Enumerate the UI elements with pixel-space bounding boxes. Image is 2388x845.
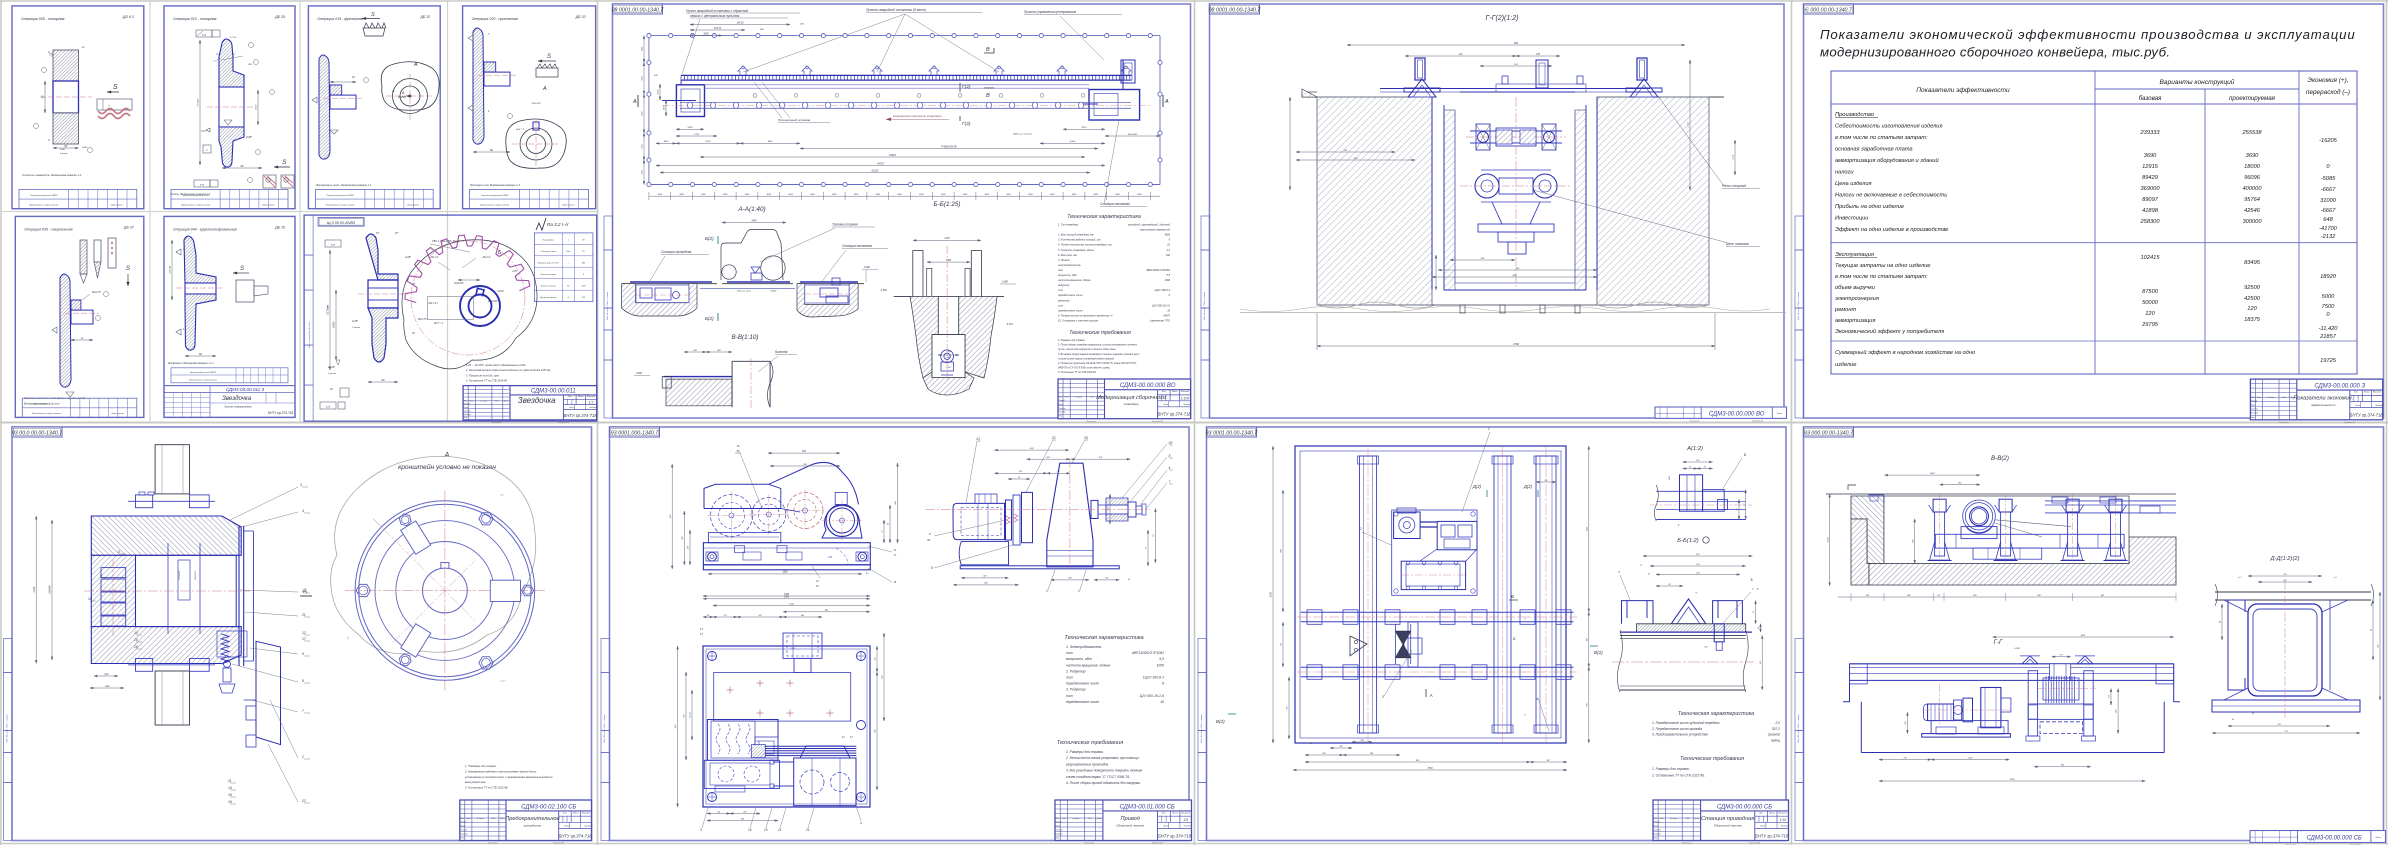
svg-text:Листов 1: Листов 1 (1780, 826, 1789, 828)
svg-text:Лист: Лист (1162, 404, 1168, 406)
svg-text:конвейера: конвейера (1124, 402, 1139, 406)
svg-text:Станция натяжная: Станция натяжная (842, 244, 872, 248)
svg-text:d₀: d₀ (567, 297, 569, 299)
svg-text:Б-Б(1:25): Б-Б(1:25) (933, 201, 960, 208)
svg-text:+: + (108, 103, 110, 107)
svg-text:Лит.: Лит. (1161, 812, 1167, 814)
svg-text:1550: 1550 (946, 260, 952, 262)
svg-text:Масса: Масса (578, 396, 583, 398)
svg-text:Утв.: Утв. (460, 838, 465, 840)
svg-text:-41700: -41700 (2319, 226, 2338, 232)
svg-text:СДМ3-00.00.000 СБ: СДМ3-00.00.000 СБ (2307, 836, 2362, 842)
svg-text:3: 3 (300, 483, 302, 487)
svg-text:Цепь тяговая: Цепь тяговая (1726, 242, 1749, 246)
svg-text:3. Редуктор: 3. Редуктор (1066, 688, 1086, 692)
svg-text:В(2): В(2) (1216, 719, 1225, 724)
svg-text:Т.контр.: Т.контр. (2251, 409, 2259, 411)
svg-text:В: В (986, 47, 990, 53)
svg-text:Разраб.: Разраб. (1056, 821, 1063, 823)
svg-text:частота вращения, об/мин: частота вращения, об/мин (1066, 663, 1110, 667)
svg-text:1000: 1000 (1156, 663, 1164, 667)
svg-text:СДМ3-00.00.000 СБ: СДМ3-00.00.000 СБ (1717, 804, 1772, 810)
svg-text:800: 800 (1514, 42, 1519, 45)
svg-text:Лист: Лист (1162, 826, 1168, 828)
svg-text:1. Размеры для справок.: 1. Размеры для справок. (1066, 750, 1104, 754)
svg-text:1530: 1530 (1930, 473, 1936, 475)
svg-text:703: 703 (2109, 695, 2111, 698)
svg-text:4700: 4700 (706, 140, 712, 143)
svg-text:Дата: Дата (2290, 397, 2296, 399)
svg-text:10: 10 (764, 828, 768, 832)
svg-text:по всем длине трассы конвейера: по всем длине трассы конвейера жидкой см… (1058, 357, 1115, 360)
svg-text:Г-Г: Г-Г (1994, 639, 2003, 646)
svg-text:Изм.: Изм. (2251, 397, 2255, 399)
svg-text:Подп.: Подп. (1090, 396, 1095, 399)
svg-text:1:10: 1:10 (1779, 818, 1786, 822)
svg-text:75: 75 (1146, 547, 1148, 549)
svg-text:12: 12 (302, 631, 306, 635)
svg-text:Дата: Дата (1096, 818, 1102, 820)
svg-text:Н.контр.: Н.контр. (2251, 413, 2259, 415)
svg-text:95764: 95764 (2244, 197, 2260, 203)
svg-text:Масса: Масса (1173, 812, 1178, 814)
svg-text:№ докум.: № докум. (1072, 817, 1080, 820)
svg-text:Лит.: Лит. (567, 396, 573, 398)
svg-text:Формат А1: Формат А1 (553, 842, 564, 845)
svg-text:Дата: Дата (1098, 397, 1104, 399)
svg-text:Д(2): Д(2) (1523, 484, 1533, 489)
svg-text:объем выручки: объем выручки (1835, 285, 1876, 291)
svg-text:Эффект на одно изделие в произ: Эффект на одно изделие в производстве (1835, 227, 1948, 233)
svg-text:15°: 15° (232, 54, 235, 56)
svg-text:Себестоимость изготовления изд: Себестоимость изготовления изделия (1835, 124, 1943, 130)
svg-text:тип: тип (1066, 676, 1073, 680)
svg-text:22: 22 (1166, 244, 1170, 247)
svg-text:1:2: 1:2 (589, 400, 594, 404)
svg-text:400000: 400000 (2243, 186, 2263, 192)
svg-text:5,5: 5,5 (1167, 274, 1171, 277)
svg-text:∅130: ∅130 (33, 586, 36, 593)
svg-text:1,115: 1,115 (1688, 122, 1690, 128)
svg-text:В-В(2): В-В(2) (1991, 455, 2009, 462)
svg-text:2х45°: 2х45° (351, 320, 358, 323)
svg-text:1. Электродвигатель: 1. Электродвигатель (1066, 645, 1102, 649)
svg-text:1. Размеры для справок.: 1. Размеры для справок. (1058, 339, 1086, 342)
svg-text:Формат А1: Формат А1 (2344, 421, 2355, 424)
svg-text:34073: 34073 (1163, 314, 1171, 317)
svg-text:-0,630: -0,630 (770, 291, 777, 293)
svg-text:93 000.00.00-1340.7: 93 000.00.00-1340.7 (1804, 431, 1854, 437)
svg-text:БНТУ гр.374-718: БНТУ гр.374-718 (564, 413, 598, 418)
svg-text:18000: 18000 (2244, 164, 2261, 170)
svg-text:Лист: Лист (469, 401, 475, 403)
svg-text:Наименование и марка станка: Наименование и марка станка (189, 380, 217, 382)
svg-text:2035: 2035 (1586, 526, 1588, 532)
svg-text:42546: 42546 (2244, 208, 2261, 214)
svg-text:3800: 3800 (768, 141, 774, 143)
svg-text:Протянуть паз, Выдерживая разм: Протянуть паз, Выдерживая размеры 1-3 (470, 184, 520, 187)
svg-text:160: 160 (1166, 254, 1171, 257)
svg-text:Н.контр.: Н.контр. (1059, 412, 1067, 414)
svg-text:16: 16 (1160, 700, 1164, 704)
svg-text:Формат А1: Формат А1 (1152, 420, 1163, 423)
svg-text:А: А (1164, 99, 1169, 105)
svg-text:22: 22 (301, 799, 306, 803)
svg-text:2475: 2475 (1081, 126, 1088, 129)
svg-text:редуктор: редуктор (1057, 284, 1070, 287)
svg-text:∅176вн: ∅176вн (197, 98, 200, 107)
svg-text:электродвигатель: электродвигатель (1058, 264, 1081, 267)
svg-text:45: 45 (1018, 476, 1020, 479)
svg-text:∅176мм: ∅176мм (326, 305, 330, 315)
svg-text:Пульты аварийной остановки (6: Пульты аварийной остановки (6 мест) (866, 8, 926, 12)
svg-text:Пров.: Пров. (1059, 404, 1064, 406)
svg-text:648: 648 (2323, 217, 2333, 223)
svg-text:регулировочных прокладок.: регулировочных прокладок. (1065, 762, 1109, 766)
svg-text:300000: 300000 (2243, 219, 2263, 225)
svg-text:84: 84 (2219, 621, 2222, 623)
svg-text:Дата: Дата (499, 818, 505, 820)
svg-text:15°: 15° (216, 54, 219, 56)
svg-text:Масса: Масса (573, 812, 578, 814)
svg-text:Г(2): Г(2) (962, 84, 971, 90)
svg-text:20: 20 (1168, 441, 1173, 445)
svg-text:Суммарный эффект в народном хо: Суммарный эффект в народном хозяйстве на… (1835, 349, 1975, 356)
svg-text:А: А (542, 86, 547, 92)
svg-text:Лист: Лист (465, 818, 471, 820)
svg-text:5. Скорость конвейера, м/мин: 5. Скорость конвейера, м/мин (1058, 249, 1094, 252)
svg-text:20: 20 (1703, 466, 1706, 468)
svg-text:обмер переход: обмер переход (262, 204, 275, 207)
svg-text:Масштаб: Масштаб (1181, 812, 1190, 814)
svg-text:модернизированного сборочного: модернизированного сборочного конвейера,… (1820, 45, 2170, 60)
svg-text:18375: 18375 (2244, 317, 2261, 323)
svg-text:3690: 3690 (2144, 153, 2157, 159)
svg-text:120: 120 (1544, 480, 1547, 482)
svg-text:16х0,018: 16х0,018 (454, 283, 464, 285)
svg-text:9ж-0,018: 9ж-0,018 (488, 301, 498, 303)
svg-text:1 фаски: 1 фаски (352, 326, 361, 329)
svg-text:Тележка опорная: Тележка опорная (832, 223, 858, 227)
svg-text:ДБ 32: ДБ 32 (575, 15, 586, 19)
svg-text:БНТУ гр.374-718: БНТУ гр.374-718 (1158, 833, 1192, 838)
svg-text:∅120: ∅120 (1107, 507, 1110, 512)
svg-text:2. Шаг позиций конвейера, мм: 2. Шаг позиций конвейера, мм (1057, 234, 1094, 237)
svg-text:ДБ 16: ДБ 16 (274, 225, 285, 229)
svg-text:∅210: ∅210 (497, 289, 504, 293)
svg-text:Технические требования: Технические требования (1057, 740, 1123, 746)
svg-text:Листов 1: Листов 1 (583, 826, 592, 828)
svg-text:19725: 19725 (2320, 358, 2337, 364)
svg-text:Пров.: Пров. (1056, 825, 1061, 827)
svg-text:Пульт аварийной остановки с об: Пульт аварийной остановки с обратной (686, 9, 748, 13)
svg-text:19: 19 (228, 800, 232, 804)
svg-text:239333: 239333 (2140, 130, 2161, 136)
svg-text:1060: 1060 (782, 572, 788, 574)
svg-text:БНТУ гр.374-718: БНТУ гр.374-718 (2350, 413, 2384, 418)
svg-text:3755: 3755 (2010, 779, 2016, 781)
svg-text:Экономический эффект у потреби: Экономический эффект у потребителя (1835, 328, 1944, 335)
svg-text:Производство: Производство (1835, 112, 1874, 118)
svg-text:50000: 50000 (2142, 300, 2159, 306)
svg-text:Б-Б(1:2): Б-Б(1:2) (1677, 538, 1698, 544)
svg-text:мощность, кВт: мощность, кВт (1058, 274, 1077, 277)
svg-text:Копировал: Копировал (1690, 420, 1701, 422)
svg-text:Показатели эффективности: Показатели эффективности (1916, 87, 2010, 94)
svg-text:перерасход (–): перерасход (–) (2306, 88, 2350, 96)
svg-text:Показатели экономич.: Показатели экономич. (2293, 396, 2353, 402)
svg-text:связью с центральным пультом: связью с центральным пультом (690, 14, 740, 18)
svg-text:2. После сборки конвейер прокр: 2. После сборки конвейер прокрутить в хо… (1057, 344, 1138, 347)
svg-text:5300: 5300 (688, 127, 694, 129)
svg-text:9000: 9000 (703, 33, 709, 35)
svg-text:Текущие затраты на одно издели: Текущие затраты на одно изделие (1835, 263, 1930, 269)
svg-text:-6667: -6667 (2321, 208, 2336, 214)
svg-text:приводной, грузоведущий, обычн: приводной, грузоведущий, обычный (1128, 224, 1171, 227)
svg-text:А: А (1429, 693, 1433, 698)
svg-text:∅190/36*: ∅190/36* (178, 570, 181, 580)
svg-text:тип: тип (1058, 289, 1063, 292)
svg-text:Инв. № подл. Подп. и дата: Инв. № подл. Подп. и дата (1797, 291, 1800, 320)
svg-text:4ВР132S6УЗ IР1081: 4ВР132S6УЗ IР1081 (1146, 269, 1170, 272)
svg-text:9. Тяговое усилие на приводных: 9. Тяговое усилие на приводных звездочка… (1058, 314, 1113, 317)
svg-text:Лист: Лист (1061, 818, 1067, 820)
svg-text:Наименование и марка станка: Наименование и марка станка (480, 205, 510, 207)
svg-text:3. Предохранительное устройств: 3. Предохранительное устройство (1652, 733, 1708, 737)
svg-text:Т.контр.: Т.контр. (460, 829, 468, 831)
svg-text:258300: 258300 (2140, 219, 2161, 225)
svg-text:Г-Г(2)(1:2): Г-Г(2)(1:2) (1486, 15, 1519, 22)
svg-text:Б: Б (1511, 594, 1514, 599)
svg-text:Показатели экономической эффек: Показатели экономической эффективности п… (1820, 27, 2356, 42)
svg-text:2: 2 (1077, 589, 1080, 593)
svg-text:S: S (547, 54, 551, 60)
svg-text:15°: 15° (376, 233, 380, 235)
svg-text:15: 15 (1640, 565, 1642, 567)
svg-text:Цена изделия: Цена изделия (1835, 181, 1872, 187)
svg-text:Утв.: Утв. (1056, 838, 1061, 840)
svg-text:4. Полное количество постов ко: 4. Полное количество постов конвейера, ш… (1058, 244, 1112, 247)
svg-text:Н.контр.: Н.контр. (464, 414, 472, 416)
svg-text:передаточное число: передаточное число (1058, 309, 1083, 312)
svg-text:В-В(1:10): В-В(1:10) (732, 334, 759, 341)
svg-text:Инв. № подл. Подп. и дата: Инв. № подл. Подп. и дата (606, 291, 609, 320)
svg-text:вертикально-замкнутый: вертикально-замкнутый (1140, 229, 1170, 232)
svg-text:1: 1 (1046, 589, 1048, 593)
svg-text:Масса: Масса (1770, 812, 1775, 814)
svg-text:Пульты управления центральные: Пульты управления центральные (1024, 10, 1076, 14)
svg-text:-5085: -5085 (2321, 176, 2336, 182)
svg-text:340: 340 (801, 614, 804, 617)
svg-text:А: А (302, 589, 307, 595)
svg-text:А-А(1:40): А-А(1:40) (737, 206, 765, 213)
svg-text:Копировал: Копировал (1084, 843, 1095, 845)
svg-text:Лист: Лист (2374, 837, 2381, 839)
svg-text:z: z (567, 240, 569, 242)
svg-text:63225: 63225 (872, 169, 879, 172)
svg-text:√Rа 3,2: √Rа 3,2 (430, 256, 439, 259)
svg-text:7. Привод: 7. Привод (1058, 259, 1070, 262)
svg-text:134,20: 134,20 (736, 21, 744, 24)
svg-text:Операция 005 - токарная: Операция 005 - токарная (21, 17, 65, 21)
svg-text:кронштейн условно не показан: кронштейн условно не показан (398, 463, 496, 471)
svg-text:4: 4 (1169, 466, 1171, 470)
svg-text:аммортизация: аммортизация (1835, 318, 1875, 324)
svg-text:тип: тип (1058, 269, 1063, 272)
svg-text:Колонна: Колонна (775, 350, 788, 354)
svg-text:83495: 83495 (2244, 260, 2261, 266)
svg-text:Листов 1: Листов 1 (1182, 404, 1191, 406)
svg-text:5,5: 5,5 (1159, 657, 1164, 661)
svg-text:92500: 92500 (2244, 285, 2261, 291)
svg-text:А: А (632, 99, 637, 105)
svg-text:Масса: Масса (2364, 392, 2369, 394)
svg-text:Разраб.: Разраб. (460, 821, 467, 823)
svg-text:-16205: -16205 (2319, 138, 2338, 144)
svg-text:Щ.0 00.00-БЧВЗ: Щ.0 00.00-БЧВЗ (327, 221, 356, 225)
svg-text:11: 11 (228, 779, 232, 783)
svg-text:170: 170 (724, 615, 727, 617)
svg-text:∅140h8: ∅140h8 (49, 585, 52, 594)
svg-text:палец: палец (1771, 738, 1780, 742)
svg-text:3. Все резьбовые поверхности п: 3. Все резьбовые поверхности покрыть тон… (1066, 769, 1143, 773)
svg-text:№ докум.: № докум. (1670, 817, 1678, 820)
svg-text:3135: 3135 (1827, 537, 1829, 543)
svg-text:мощность, кВт: мощность, кВт (1066, 657, 1092, 661)
svg-text:Подп.: Подп. (1685, 817, 1690, 820)
svg-text:22: 22 (1051, 436, 1056, 440)
svg-text:40: 40 (1669, 583, 1671, 586)
svg-text:1 фаски: 1 фаски (328, 372, 337, 375)
svg-text:Инв. № подл. Подп. и дата: Инв. № подл. Подп. и дата (1797, 714, 1800, 743)
svg-text:Н.контр.: Н.контр. (1654, 833, 1662, 835)
svg-text:Звездочка: Звездочка (222, 395, 252, 402)
svg-text:Н.контр.: Н.контр. (460, 833, 468, 835)
svg-text:Экономия (+),: Экономия (+), (2308, 77, 2349, 84)
svg-text:1:100: 1:100 (1181, 397, 1190, 401)
svg-text:6465-76 №ТЗ VII.УЗ В-Вл сл: 6465-76 №ТЗ VII.УЗ В-Вл слоя обеспеч. ср… (1058, 367, 1111, 370)
svg-text:2. Направление рабочего хода: 2. Направление рабочего хода выключает д… (464, 769, 537, 773)
svg-text:1. Тип конвейера: 1. Тип конвейера (1058, 224, 1078, 227)
svg-text:-2132: -2132 (2321, 234, 2336, 240)
svg-text:961: 961 (1958, 482, 1961, 484)
svg-text:Варианты конструкций: Варианты конструкций (2160, 78, 2235, 86)
svg-text:5600: 5600 (1164, 234, 1170, 237)
svg-text:№ докум.: № докум. (1075, 396, 1083, 399)
svg-text:Класс точности: Класс точности (541, 274, 558, 276)
svg-text:307,2: 307,2 (1772, 727, 1780, 731)
svg-text:Инв. № подл. Подп. и дата: Инв. № подл. Подп. и дата (1200, 714, 1203, 743)
svg-text:3. Остальные ТТ по СТБ 1022-96: 3. Остальные ТТ по СТБ 1022-96. (465, 786, 508, 790)
svg-text:1x45°: 1x45° (82, 146, 88, 149)
svg-text:Т.контр.: Т.контр. (1654, 829, 1662, 831)
svg-text:Техническая характеристика: Техническая характеристика (1064, 635, 1143, 641)
svg-text:Ц2У-500-16-1-К: Ц2У-500-16-1-К (1140, 694, 1165, 698)
svg-text:√Rа 3,2: √Rа 3,2 (482, 256, 491, 259)
svg-text:-11,420: -11,420 (2319, 326, 2339, 332)
svg-text:Лист: Лист (1659, 818, 1665, 820)
svg-text:3763: 3763 (1427, 768, 1433, 770)
svg-text:Изм.: Изм. (1059, 397, 1063, 399)
svg-text:7: 7 (302, 709, 304, 713)
svg-text:Є 000.00.00-1340.7: Є 000.00.00-1340.7 (1805, 8, 1853, 14)
svg-text:21: 21 (301, 613, 306, 617)
svg-text:слоем солидола марки "С" ГОСТ: слоем солидола марки "С" ГОСТ 4366-76. (1066, 775, 1130, 779)
svg-text:2. Несоответствие пазов относи: 2. Несоответствие пазов относительно оси… (465, 368, 550, 372)
svg-text:Копировал: Копировал (1682, 843, 1693, 845)
svg-text:Изм.: Изм. (460, 818, 464, 820)
svg-text:Пров.: Пров. (460, 825, 465, 827)
svg-text:Лит.: Лит. (2353, 392, 2359, 394)
svg-text:87500: 87500 (2142, 289, 2159, 295)
svg-text:Налоги не включаемые в себесто: Налоги не включаемые в себестоимость (1835, 193, 1947, 199)
svg-text:08 0001.00.00-1340.7: 08 0001.00.00-1340.7 (612, 8, 665, 14)
svg-text:Подп.: Подп. (1088, 817, 1093, 820)
svg-text:Токарно-винторезный 16К20: Токарно-винторезный 16К20 (481, 194, 509, 197)
svg-text:Рельс опорный: Рельс опорный (1722, 184, 1746, 188)
svg-text:Масса: Масса (1172, 391, 1177, 393)
svg-text:Шлифовать, Выдерживая размеры: Шлифовать, Выдерживая размеры 1 и 2 (168, 362, 214, 365)
svg-text:5: 5 (1169, 454, 1171, 458)
svg-text:Уточнить товарность. Выдержива: Уточнить товарность. Выдерживая размеры … (22, 174, 82, 177)
svg-text:Масштаб: Масштаб (1779, 812, 1788, 814)
svg-text:6. Шаг цепи, мм: 6. Шаг цепи, мм (1058, 254, 1077, 257)
svg-text:24: 24 (747, 828, 752, 832)
svg-text:Сверлильный станок 2Н135: Сверлильный станок 2Н135 (33, 403, 61, 406)
svg-text:5: 5 (118, 550, 120, 554)
svg-text:4ВР132S6УЗ IР1081: 4ВР132S6УЗ IР1081 (1132, 651, 1164, 655)
svg-text:Лист: Лист (1776, 413, 1783, 415)
svg-text:2100: 2100 (943, 238, 950, 240)
svg-text:89097: 89097 (2142, 197, 2159, 203)
svg-text:120: 120 (2247, 306, 2257, 312)
svg-text:255538: 255538 (2242, 130, 2263, 136)
svg-text:3810: 3810 (664, 141, 670, 143)
svg-text:Позиционный останов: Позиционный останов (778, 118, 811, 122)
svg-text:10: 10 (88, 597, 92, 601)
svg-text:Станция приводная: Станция приводная (1701, 816, 1754, 822)
svg-text:08 0001.00.00-1340.7: 08 0001.00.00-1340.7 (1209, 8, 1262, 14)
svg-text:Лист: Лист (2256, 397, 2262, 399)
svg-text:Инвестиции: Инвестиции (1835, 216, 1869, 222)
svg-text:Привод: Привод (1121, 816, 1140, 822)
svg-text:Ц2У-500-16-1-К: Ц2У-500-16-1-К (1152, 304, 1170, 307)
svg-text:суток, затем под нагрузкой в: суток, затем под нагрузкой в течении обе… (1058, 348, 1117, 351)
svg-text:4: 4 (1536, 697, 1538, 701)
svg-text:устройство: устройство (523, 824, 542, 828)
svg-text:Станция приводная: Станция приводная (661, 250, 692, 254)
svg-text:СДМ3-00.00.000 ВО: СДМ3-00.00.000 ВО (1709, 411, 1765, 417)
svg-text:+2,30: +2,30 (1733, 154, 1735, 160)
svg-text:12915: 12915 (2142, 164, 2159, 170)
svg-text:№ докум.: № докум. (480, 400, 488, 403)
svg-text:проектируемая: проектируемая (2229, 95, 2276, 102)
svg-text:А: А (413, 62, 418, 68)
svg-text:Разраб.: Разраб. (1059, 400, 1066, 402)
svg-text:44,6⁺⁰·²: 44,6⁺⁰·² (516, 128, 524, 131)
svg-text:базовая: базовая (2139, 95, 2163, 102)
svg-text:1700: 1700 (1513, 342, 1519, 346)
svg-text:Т.контр.: Т.контр. (1056, 829, 1064, 831)
svg-text:срезной: срезной (1768, 733, 1780, 737)
svg-text:№ докум.: № докум. (2267, 396, 2275, 399)
svg-text:2,2: 2,2 (1166, 249, 1171, 252)
svg-text:1960: 1960 (784, 594, 790, 596)
svg-text:ДБ 32: ДБ 32 (419, 15, 430, 19)
svg-text:СДМ3-00.00.011 З: СДМ3-00.00.011 З (226, 387, 265, 392)
svg-text:Сборочный чертеж: Сборочный чертеж (1116, 824, 1145, 828)
svg-text:210: 210 (1458, 54, 1464, 56)
